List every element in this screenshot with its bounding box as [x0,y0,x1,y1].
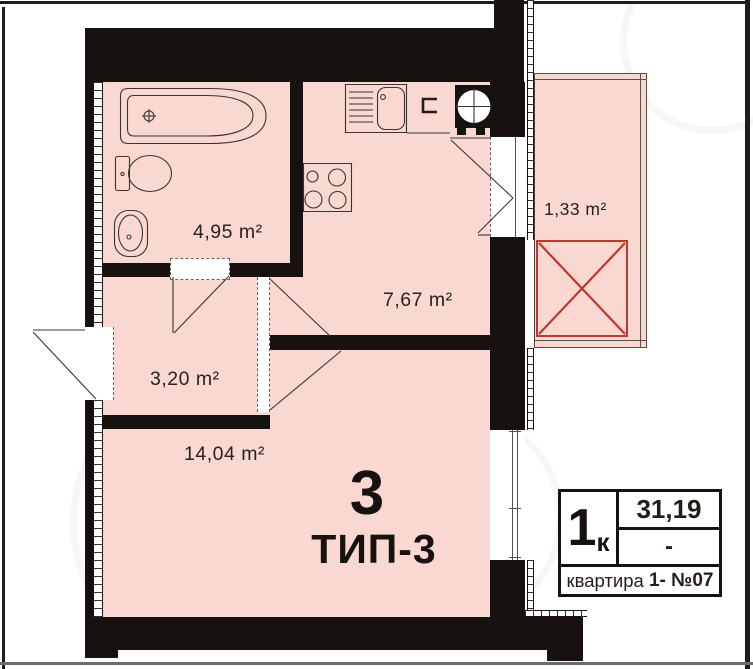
hall-opening-swing [270,351,341,410]
balcony-cross-lines [539,243,625,334]
balcony-door-swing [451,140,513,198]
apartment-value: 1- [649,570,671,592]
stamp-second-area-cell: - [619,530,719,564]
vent-symbol [423,99,437,112]
living-area-label: 14,04 m² [184,443,265,466]
kitchen-area-label: 7,67 m² [383,289,453,312]
apartment-number: №07 [671,570,713,592]
stamp-total-area-cell: 31,19 [619,492,719,530]
balcony-door-swing [478,198,513,233]
hall-area-label: 3,20 m² [150,368,220,391]
toilet [116,157,130,191]
rooms-unit: к [596,527,609,558]
apartment-type-name: ТИП-3 [296,526,452,573]
apartment-word: квартира [567,570,649,592]
bathroom-area-label: 4,95 m² [193,221,263,244]
stamp-rooms-cell: 1к [561,492,619,564]
bathroom-door-swing [174,276,229,333]
stamp-apartment-cell: квартира 1- №07 [561,564,719,594]
balcony-area-label: 1,33 m² [544,199,607,220]
rooms-count: 1 [568,502,597,554]
hall-opening-swing [270,279,330,336]
apartment-type-number: 3 [333,458,401,529]
floor-plan: 4,95 m² 7,67 m² 1,33 m² 3,20 m² 14,04 m²… [0,0,753,669]
entry-door-swing [33,332,96,399]
apartment-stamp-box: 1к 31,19 - квартира 1- №07 [558,489,722,597]
washing-machine [455,85,493,135]
